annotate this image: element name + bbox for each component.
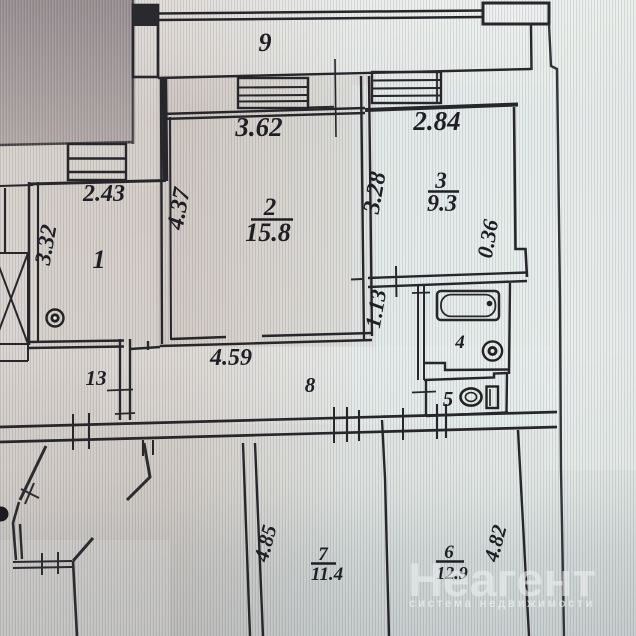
svg-text:3: 3 xyxy=(434,168,447,193)
svg-text:система недвижимости: система недвижимости xyxy=(409,598,595,610)
svg-text:5: 5 xyxy=(443,387,454,411)
svg-text:1: 1 xyxy=(93,245,106,274)
svg-text:11.4: 11.4 xyxy=(311,564,343,585)
svg-text:2.43: 2.43 xyxy=(82,181,125,207)
svg-text:9.3: 9.3 xyxy=(427,191,457,217)
svg-text:4: 4 xyxy=(454,332,465,353)
svg-text:2.84: 2.84 xyxy=(412,106,460,136)
svg-text:2: 2 xyxy=(263,194,277,221)
svg-text:15.8: 15.8 xyxy=(245,218,291,247)
svg-text:9: 9 xyxy=(259,28,272,57)
svg-text:7: 7 xyxy=(318,544,329,565)
svg-text:4.59: 4.59 xyxy=(209,345,252,371)
svg-text:8: 8 xyxy=(305,373,316,397)
svg-text:3.62: 3.62 xyxy=(234,112,282,142)
svg-text:13: 13 xyxy=(86,366,107,390)
